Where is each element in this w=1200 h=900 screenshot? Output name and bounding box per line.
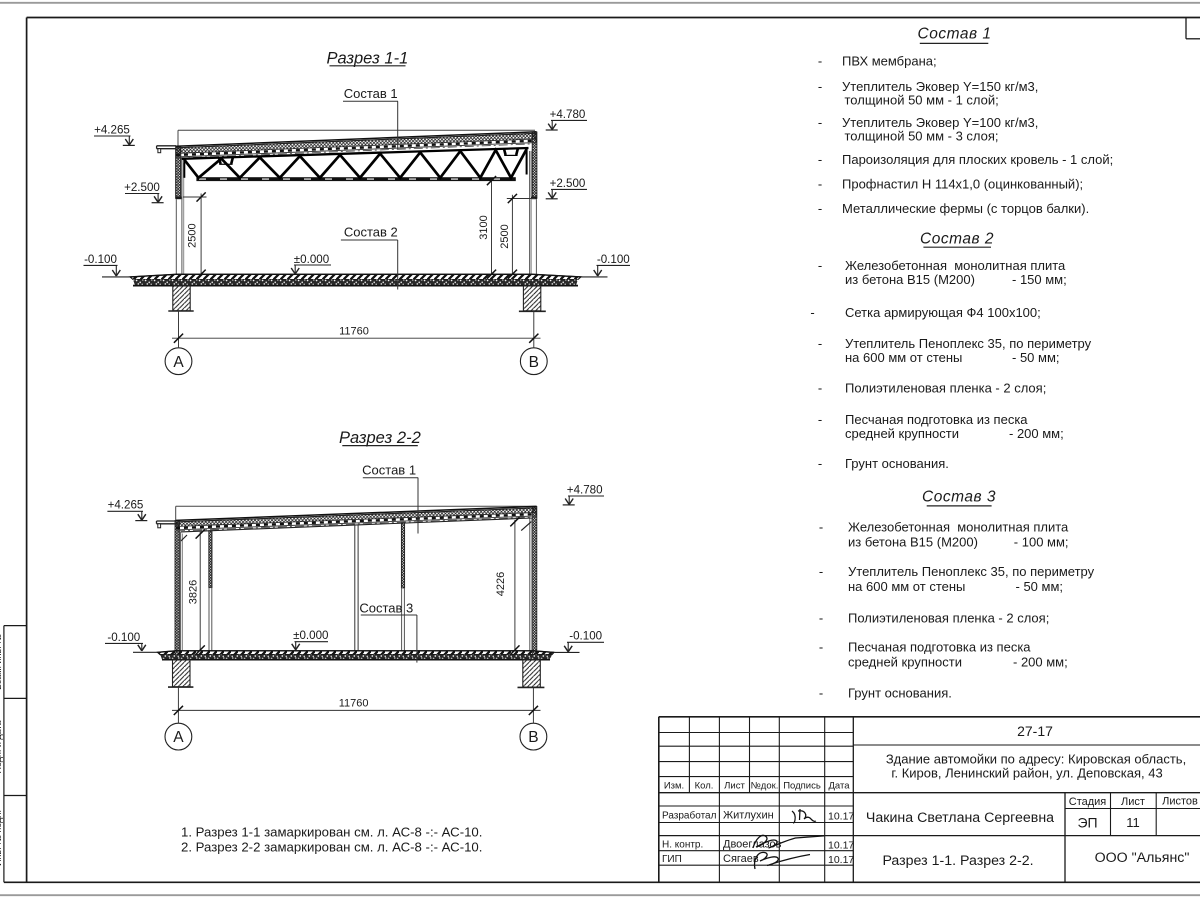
svg-text:Полиэтиленовая пленка - 2 слоя: Полиэтиленовая пленка - 2 слоя; bbox=[848, 611, 1049, 626]
svg-text:+4.780: +4.780 bbox=[567, 483, 603, 496]
svg-text:на 600 мм от стены: на 600 мм от стены bbox=[848, 579, 965, 594]
svg-text:Инв. № подл.: Инв. № подл. bbox=[0, 810, 3, 866]
svg-text:Листов: Листов bbox=[1162, 796, 1198, 808]
svg-text:Состав 2: Состав 2 bbox=[920, 231, 994, 248]
svg-text:Состав 3: Состав 3 bbox=[359, 600, 413, 615]
svg-text:№док.: №док. bbox=[751, 781, 779, 792]
svg-text:+2.500: +2.500 bbox=[124, 181, 160, 194]
svg-text:10.17: 10.17 bbox=[828, 839, 854, 851]
svg-text:Подп. и дата: Подп. и дата bbox=[0, 720, 3, 773]
svg-text:Утеплитель Пеноплекс 35, по пе: Утеплитель Пеноплекс 35, по периметру bbox=[845, 336, 1092, 351]
svg-text:Разрез 1-1. Разрез 2-2.: Разрез 1-1. Разрез 2-2. bbox=[882, 853, 1033, 869]
svg-text:Разрез 2-2: Разрез 2-2 bbox=[339, 429, 421, 447]
svg-text:-: - bbox=[818, 54, 822, 69]
svg-text:-: - bbox=[818, 412, 822, 427]
svg-text:±0.000: ±0.000 bbox=[294, 253, 329, 266]
svg-text:ЭП: ЭП bbox=[1077, 815, 1097, 831]
svg-text:Состав 1: Состав 1 bbox=[918, 26, 992, 43]
svg-text:Стадия: Стадия bbox=[1069, 796, 1107, 808]
svg-text:Песчаная подготовка из песка: Песчаная подготовка из песка bbox=[848, 640, 1031, 655]
svg-text:-0.100: -0.100 bbox=[84, 253, 117, 266]
svg-text:Пароизоляция для плоских крове: Пароизоляция для плоских кровель - 1 сло… bbox=[842, 152, 1113, 167]
svg-text:4226: 4226 bbox=[495, 572, 507, 596]
svg-text:Грунт основания.: Грунт основания. bbox=[845, 456, 949, 471]
svg-text:3100: 3100 bbox=[478, 215, 490, 239]
svg-text:11760: 11760 bbox=[339, 326, 369, 338]
svg-text:Подпись: Подпись bbox=[783, 781, 821, 792]
svg-text:1. Разрез 1-1 замаркирован см.: 1. Разрез 1-1 замаркирован см. л. АС-8 -… bbox=[181, 824, 482, 839]
svg-text:3826: 3826 bbox=[187, 580, 199, 604]
svg-text:Полиэтиленовая пленка - 2 слоя: Полиэтиленовая пленка - 2 слоя; bbox=[845, 381, 1046, 396]
svg-text:- 50 мм;: - 50 мм; bbox=[1016, 579, 1064, 594]
svg-text:- 200 мм;: - 200 мм; bbox=[1013, 655, 1068, 670]
svg-text:±0.000: ±0.000 bbox=[293, 629, 328, 642]
svg-text:- 100 мм;: - 100 мм; bbox=[1014, 535, 1069, 550]
svg-text:Лист: Лист bbox=[1121, 796, 1145, 808]
svg-text:11760: 11760 bbox=[339, 698, 369, 710]
svg-text:2500: 2500 bbox=[187, 223, 199, 247]
svg-text:Кол.: Кол. bbox=[695, 781, 714, 792]
svg-text:- 150 мм;: - 150 мм; bbox=[1012, 272, 1067, 287]
svg-text:из бетона В15 (М200): из бетона В15 (М200) bbox=[845, 272, 975, 287]
svg-text:-: - bbox=[818, 115, 822, 130]
svg-text:толщиной 50 мм - 1 слой;: толщиной 50 мм - 1 слой; bbox=[845, 92, 999, 107]
svg-text:-: - bbox=[819, 611, 823, 626]
svg-text:ООО "Альянс": ООО "Альянс" bbox=[1095, 850, 1190, 866]
svg-text:Чакина Светлана Сергеевна: Чакина Светлана Сергеевна bbox=[866, 810, 1054, 826]
svg-text:Грунт основания.: Грунт основания. bbox=[848, 686, 952, 701]
svg-text:Сягаев: Сягаев bbox=[723, 853, 759, 865]
svg-text:средней крупности: средней крупности bbox=[845, 426, 959, 441]
svg-text:-: - bbox=[818, 79, 822, 94]
svg-text:Здание автомойки по адресу: Ки: Здание автомойки по адресу: Кировская об… bbox=[886, 752, 1186, 767]
svg-text:толщиной 50 мм - 3 слоя;: толщиной 50 мм - 3 слоя; bbox=[845, 128, 999, 143]
svg-text:+4.780: +4.780 bbox=[550, 108, 586, 121]
svg-text:В: В bbox=[528, 729, 538, 746]
svg-text:Разработал: Разработал bbox=[662, 810, 717, 822]
svg-text:Состав 1: Состав 1 bbox=[344, 86, 398, 101]
svg-text:+2.500: +2.500 bbox=[550, 177, 586, 190]
svg-text:-: - bbox=[818, 336, 822, 351]
svg-text:27-17: 27-17 bbox=[1017, 723, 1053, 739]
svg-text:ГИП: ГИП bbox=[662, 854, 682, 865]
svg-text:Н. контр.: Н. контр. bbox=[662, 840, 703, 851]
svg-text:Сетка армирующая Ф4 100х100;: Сетка армирующая Ф4 100х100; bbox=[845, 305, 1041, 320]
svg-text:Разрез 1-1: Разрез 1-1 bbox=[327, 50, 409, 68]
svg-text:средней крупности: средней крупности bbox=[848, 655, 962, 670]
svg-text:Профнастил Н 114х1,0 (оцинкова: Профнастил Н 114х1,0 (оцинкованный); bbox=[842, 177, 1083, 192]
svg-text:- 200 мм;: - 200 мм; bbox=[1009, 426, 1064, 441]
svg-text:-0.100: -0.100 bbox=[107, 631, 140, 644]
svg-text:Состав 1: Состав 1 bbox=[362, 463, 416, 478]
svg-text:А: А bbox=[173, 354, 184, 371]
svg-text:Изм.: Изм. bbox=[664, 781, 684, 792]
svg-text:Песчаная подготовка из песка: Песчаная подготовка из песка bbox=[845, 412, 1028, 427]
svg-text:-: - bbox=[818, 381, 822, 396]
svg-text:-: - bbox=[810, 305, 814, 320]
svg-text:-0.100: -0.100 bbox=[569, 630, 602, 643]
svg-text:2500: 2500 bbox=[499, 224, 511, 248]
svg-text:г. Киров, Ленинский район, ул.: г. Киров, Ленинский район, ул. Деповская… bbox=[891, 766, 1162, 781]
svg-text:-0.100: -0.100 bbox=[597, 253, 630, 266]
svg-text:Житлухин: Житлухин bbox=[723, 810, 774, 822]
svg-text:Лист: Лист bbox=[724, 781, 745, 792]
svg-text:+4.265: +4.265 bbox=[94, 124, 130, 137]
svg-text:2. Разрез 2-2 замаркирован см.: 2. Разрез 2-2 замаркирован см. л. АС-8 -… bbox=[181, 840, 482, 855]
svg-text:-: - bbox=[818, 258, 822, 273]
svg-text:-: - bbox=[818, 177, 822, 192]
svg-text:10.17: 10.17 bbox=[828, 854, 854, 866]
svg-text:Состав 3: Состав 3 bbox=[922, 489, 996, 506]
svg-text:-: - bbox=[818, 152, 822, 167]
svg-text:-: - bbox=[819, 564, 823, 579]
svg-text:на 600 мм от стены: на 600 мм от стены bbox=[845, 350, 962, 365]
svg-text:Металлические фермы (с торцов: Металлические фермы (с торцов балки). bbox=[842, 201, 1089, 216]
svg-text:-: - bbox=[819, 640, 823, 655]
svg-text:11: 11 bbox=[1126, 815, 1140, 830]
svg-text:-: - bbox=[819, 686, 823, 701]
svg-text:В: В bbox=[529, 354, 539, 371]
svg-text:Состав 2: Состав 2 bbox=[344, 224, 398, 239]
svg-text:-: - bbox=[818, 201, 822, 216]
svg-text:Взам. инв. №: Взам. инв. № bbox=[0, 634, 3, 690]
svg-text:Железобетонная монолитная пли: Железобетонная монолитная плита bbox=[845, 258, 1066, 273]
svg-text:Утеплитель Пеноплекс 35, по пе: Утеплитель Пеноплекс 35, по периметру bbox=[848, 564, 1095, 579]
svg-text:из бетона В15 (М200): из бетона В15 (М200) bbox=[848, 535, 978, 550]
svg-text:-: - bbox=[819, 520, 823, 535]
svg-text:Дата: Дата bbox=[828, 781, 850, 792]
svg-text:Железобетонная монолитная пли: Железобетонная монолитная плита bbox=[848, 520, 1069, 535]
svg-text:-: - bbox=[818, 456, 822, 471]
svg-text:+4.265: +4.265 bbox=[108, 498, 144, 511]
svg-text:А: А bbox=[173, 729, 184, 746]
svg-text:10.17: 10.17 bbox=[828, 811, 854, 823]
svg-text:ПВХ мембрана;: ПВХ мембрана; bbox=[842, 54, 937, 69]
svg-text:- 50 мм;: - 50 мм; bbox=[1012, 350, 1060, 365]
